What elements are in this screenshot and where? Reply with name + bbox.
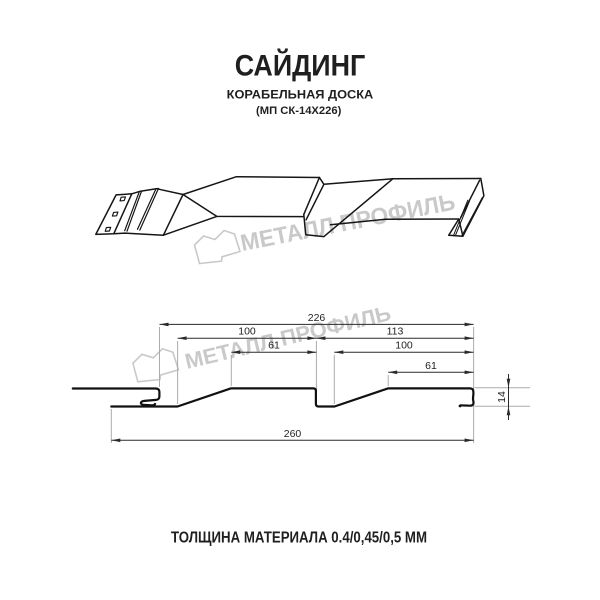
svg-text:61: 61 — [425, 360, 437, 372]
svg-text:КОРАБЕЛЬНАЯ ДОСКА: КОРАБЕЛЬНАЯ ДОСКА — [227, 88, 374, 101]
svg-text:14: 14 — [496, 391, 508, 403]
svg-text:226: 226 — [308, 312, 326, 324]
svg-text:(МП СК-14Х226): (МП СК-14Х226) — [256, 105, 342, 117]
svg-text:ТОЛЩИНА МАТЕРИАЛА 0.4/0,45/0,5: ТОЛЩИНА МАТЕРИАЛА 0.4/0,45/0,5 ММ — [171, 530, 427, 547]
svg-text:САЙДИНГ: САЙДИНГ — [235, 49, 366, 83]
svg-text:61: 61 — [268, 340, 280, 352]
svg-text:100: 100 — [395, 340, 413, 352]
svg-text:113: 113 — [387, 326, 404, 338]
svg-text:260: 260 — [284, 428, 302, 440]
svg-text:100: 100 — [238, 326, 256, 338]
